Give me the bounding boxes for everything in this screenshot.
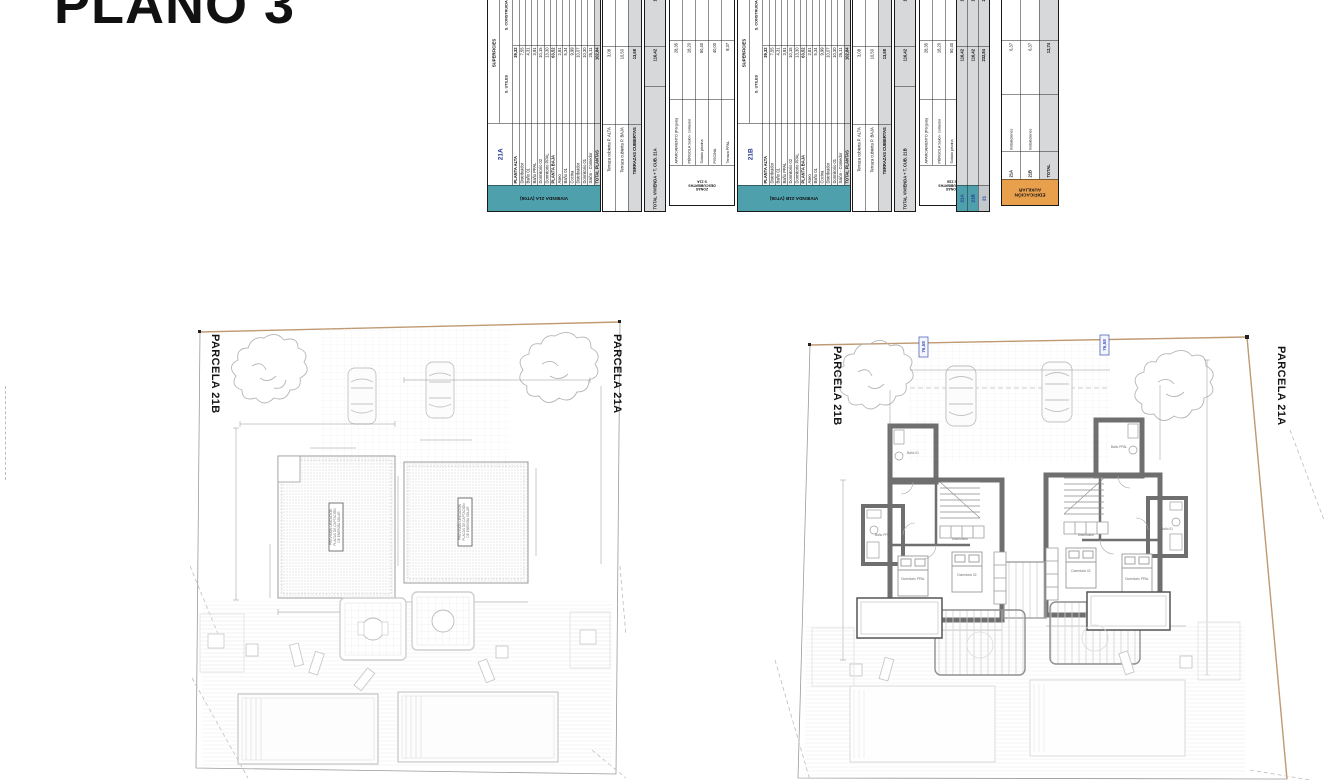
cell-construidas: 12 bbox=[844, 0, 850, 45]
row-id: 21B bbox=[1021, 151, 1039, 179]
cell-utiles: 13,58 bbox=[629, 47, 641, 124]
svg-text:Baño 01: Baño 01 bbox=[1161, 527, 1173, 531]
table-row: APARCAMIENTO (Pérgola)28,35 bbox=[670, 0, 682, 165]
row-id: 21A bbox=[1002, 151, 1020, 179]
sheet-title: PLANO 3 bbox=[54, 0, 295, 36]
table-rows: TOTAL VIVIENDA + T. CUB. 21A116,4213 bbox=[645, 0, 665, 211]
cell-utiles: 3,08 bbox=[853, 47, 865, 124]
auxiliar-side-line: EDIFICACIÓN bbox=[1015, 192, 1046, 197]
table-id-cell: 21A bbox=[488, 123, 513, 185]
car-icon bbox=[946, 366, 976, 426]
table-row: TERRAZAS CUBIERTAS13,581 bbox=[628, 0, 641, 211]
car-icon bbox=[1042, 362, 1072, 422]
cell-value: 116,42 bbox=[957, 47, 967, 186]
cell-construidas: 1 bbox=[1040, 0, 1058, 40]
svg-text:Baño 01: Baño 01 bbox=[907, 451, 919, 455]
cell-construidas bbox=[853, 0, 865, 47]
table-row: TOTAL PLANTAS102,8412 bbox=[594, 0, 600, 185]
construidas-header: S. CONSTRUIDAS bbox=[500, 0, 513, 45]
floor-plan-drawing: 76,58 76,58 bbox=[770, 330, 1324, 780]
table-vivienda-21b: VIVIENDA 21B (VT06)21BSUPERFICIESS. UTIL… bbox=[737, 0, 851, 212]
cell-value: 18,20 bbox=[683, 40, 695, 98]
superficies-header: SUPERFICIES bbox=[738, 0, 750, 123]
cell-construidas: 13 bbox=[895, 0, 915, 47]
table-row: Solado piscina50,40 bbox=[695, 0, 708, 165]
resumen-id: 21A bbox=[957, 185, 967, 211]
auxiliar-side-line: AUXILIAR bbox=[1015, 187, 1046, 192]
roof-plan-drawing: PREVISIÓN UBICACIÓN PLACAS DE CAPTACIÓN … bbox=[190, 316, 626, 780]
cell-value: 18,20 bbox=[933, 40, 945, 98]
resumen-id: 21 bbox=[979, 185, 989, 211]
superficies-header: SUPERFICIES bbox=[488, 0, 500, 123]
table-rows: TOTAL VIVIENDA + T. CUB. 21B116,4213 bbox=[895, 0, 915, 211]
utiles-header: S. UTILES bbox=[750, 45, 763, 123]
table-rows: PLANTA ALTA39,324Distribuidor7,55Baño 01… bbox=[763, 0, 850, 185]
svg-text:Baño PPAL: Baño PPAL bbox=[1111, 445, 1127, 449]
svg-text:Baño PPAL: Baño PPAL bbox=[875, 533, 891, 537]
car-icon bbox=[426, 362, 454, 418]
parcela-label-21a: PARCELA 21A bbox=[611, 334, 623, 414]
roof-area-21a: PREVISIÓN UBICACIÓN PLACAS DE CAPTACIÓN … bbox=[404, 462, 528, 583]
cell-utiles: 116,42 bbox=[895, 47, 915, 87]
table-row: PÉRGOLA Salón- comedor18,20 bbox=[932, 0, 945, 165]
table-total-21a: TOTAL VIVIENDA + T. CUB. 21A116,4213 bbox=[644, 0, 666, 212]
cell-construidas bbox=[696, 0, 708, 40]
vivienda-side-label: VIVIENDA 21B (VT06) bbox=[770, 196, 818, 201]
table-zonas-descubiertas-21a: ZONASDESCUBIERTASS 21AAPARCAMIENTO (Pérg… bbox=[669, 0, 735, 206]
solar-note-text: PREVISIÓN UBICACIÓN PLACAS DE CAPTACIÓN … bbox=[457, 503, 470, 541]
table-row: Terraza PPAL9,37 bbox=[721, 0, 734, 165]
svg-text:76,58: 76,58 bbox=[1102, 339, 1107, 351]
row-name: Instalaciones bbox=[1021, 94, 1039, 151]
side-deck bbox=[812, 628, 854, 686]
cell-value: 232,84 bbox=[979, 47, 989, 186]
table-terrazas-21a: Terraza cubierta P. ALTA3,08Terraza cubi… bbox=[602, 0, 642, 212]
row-label: Terraza cubierta P. ALTA bbox=[853, 124, 865, 211]
row-label: TERRAZAS CUBIERTAS bbox=[879, 124, 891, 211]
cell-value: 50,40 bbox=[696, 40, 708, 98]
table-row: Terraza cubierta P. BAJA10,50 bbox=[865, 0, 878, 211]
table-terrazas-21b: Terraza cubierta P. ALTA3,08Terraza cubi… bbox=[852, 0, 892, 212]
table-row: TOTAL PLANTAS102,8412 bbox=[844, 0, 850, 185]
cell-construidas bbox=[683, 0, 695, 40]
table-rows: APARCAMIENTO (Pérgola)28,35PÉRGOLA Salón… bbox=[670, 0, 734, 165]
table-row: 21232,8427 bbox=[978, 0, 989, 211]
parcela-label-21b: PARCELA 21B bbox=[209, 334, 221, 414]
row-label: TOTAL VIVIENDA + T. CUB. 21A bbox=[645, 86, 665, 211]
row-label: PÉRGOLA Salón- comedor bbox=[683, 99, 695, 165]
cell-construidas bbox=[866, 0, 878, 47]
row-label: TOTAL PLANTAS bbox=[594, 123, 600, 185]
table-row: 21B116,4213 bbox=[967, 0, 978, 211]
cell-construidas bbox=[722, 0, 734, 40]
cell-utiles: 102,84 bbox=[594, 45, 600, 123]
cell-value: 6,37 bbox=[1002, 40, 1020, 93]
row-label: Terraza cubierta P. ALTA bbox=[603, 124, 615, 211]
cell-value: 12,74 bbox=[1040, 40, 1058, 93]
driveway-hatch bbox=[910, 344, 1110, 462]
table-row: TERRAZAS CUBIERTAS13,581 bbox=[878, 0, 891, 211]
row-label: APARCAMIENTO (Pérgola) bbox=[670, 99, 682, 165]
vivienda-side-band: VIVIENDA 21B (VT06) bbox=[738, 185, 850, 211]
table-row: Terraza cubierta P. ALTA3,08 bbox=[603, 0, 615, 211]
cell-construidas: 13 bbox=[957, 0, 967, 47]
vivienda-side-label: VIVIENDA 21A (VT06) bbox=[520, 196, 568, 201]
pool bbox=[398, 692, 558, 762]
cell-utiles: 13,58 bbox=[879, 47, 891, 124]
row-label: TOTAL PLANTAS bbox=[844, 123, 850, 185]
cell-construidas bbox=[616, 0, 628, 47]
table-row: 21BInstalaciones6,37 bbox=[1020, 0, 1039, 179]
cell-value: 40,00 bbox=[709, 40, 721, 98]
cell-utiles: 102,84 bbox=[844, 45, 850, 123]
cell-construidas bbox=[933, 0, 945, 40]
row-label: Terraza cubierta P. BAJA bbox=[866, 124, 878, 211]
table-rows: PLANTA ALTA39,324Distribuidor7,55Baño 01… bbox=[513, 0, 600, 185]
utiles-header: S. UTILES bbox=[500, 45, 513, 123]
row-label: PÉRGOLA Salón- comedor bbox=[933, 99, 945, 165]
svg-text:Dormitorio 02: Dormitorio 02 bbox=[1071, 569, 1090, 573]
cell-construidas bbox=[603, 0, 615, 47]
row-name: Instalaciones bbox=[1002, 94, 1020, 151]
auxiliar-side-label: EDIFICACIÓNAUXILIAR bbox=[1015, 187, 1046, 197]
pool bbox=[238, 694, 378, 764]
svg-text:DE ENERGÍA SOLAR: DE ENERGÍA SOLAR bbox=[466, 506, 470, 538]
table-row: PÉRGOLA Salón- comedor18,20 bbox=[682, 0, 695, 165]
zonas-side-band: ZONASDESCUBIERTASS 21A bbox=[670, 165, 734, 205]
neighbour-boundary-dash bbox=[5, 386, 6, 480]
svg-text:Dormitorio PPAL: Dormitorio PPAL bbox=[901, 577, 925, 581]
cell-value: 28,35 bbox=[920, 40, 932, 98]
plan-sheet: PLANO 3 VIVIENDA 21A (VT06)21ASUPERFICIE… bbox=[0, 0, 1324, 780]
svg-text:DE ENERGÍA SOLAR: DE ENERGÍA SOLAR bbox=[337, 511, 341, 543]
cell-construidas: 12 bbox=[594, 0, 600, 45]
zonas-side-label: ZONASDESCUBIERTASS 21A bbox=[688, 180, 715, 191]
svg-text:Dormitorio PPAL: Dormitorio PPAL bbox=[1125, 577, 1149, 581]
cell-construidas bbox=[920, 0, 932, 40]
row-label: Terraza PPAL bbox=[722, 99, 734, 165]
cell-value: 28,35 bbox=[670, 40, 682, 98]
table-row: Terraza cubierta P. BAJA10,50 bbox=[615, 0, 628, 211]
table-row: TOTAL VIVIENDA + T. CUB. 21B116,4213 bbox=[895, 0, 915, 211]
cell-value: 116,42 bbox=[968, 47, 978, 186]
table-resumen-superficies: 21A116,421321B116,421321232,8427 bbox=[956, 0, 990, 212]
table-rows: 21A116,421321B116,421321232,8427 bbox=[957, 0, 989, 211]
auxiliar-side-band: EDIFICACIÓNAUXILIAR bbox=[1002, 179, 1058, 205]
table-vivienda-21a: VIVIENDA 21A (VT06)21ASUPERFICIESS. UTIL… bbox=[487, 0, 601, 212]
table-edificacion-auxiliar: EDIFICACIÓNAUXILIAR21AInstalaciones6,372… bbox=[1001, 0, 1059, 206]
cell-value: 6,37 bbox=[1021, 40, 1039, 93]
cell-construidas: 13 bbox=[645, 0, 665, 47]
table-rows: Terraza cubierta P. ALTA3,08Terraza cubi… bbox=[603, 0, 641, 211]
cell-construidas: 1 bbox=[879, 0, 891, 47]
table-row: APARCAMIENTO (Pérgola)28,35 bbox=[920, 0, 932, 165]
row-name bbox=[1040, 94, 1058, 151]
level-marker: 76,58 bbox=[919, 337, 928, 357]
zonas-side-line: DESCUBIERTAS bbox=[688, 183, 715, 187]
table-rows: Terraza cubierta P. ALTA3,08Terraza cubi… bbox=[853, 0, 891, 211]
cell-utiles: 10,50 bbox=[616, 47, 628, 124]
side-deck bbox=[1198, 622, 1240, 680]
solar-note-text: PREVISIÓN UBICACIÓN PLACAS DE CAPTACIÓN … bbox=[328, 508, 341, 546]
cell-construidas bbox=[1002, 0, 1020, 40]
cell-construidas: 1 bbox=[629, 0, 641, 47]
table-row: PISCINA40,00 bbox=[708, 0, 721, 165]
svg-text:Dormitorio 02: Dormitorio 02 bbox=[957, 573, 976, 577]
row-label: PISCINA bbox=[709, 99, 721, 165]
row-id: TOTAL bbox=[1040, 151, 1058, 179]
level-marker: 76,58 bbox=[1100, 335, 1109, 355]
row-label: TOTAL VIVIENDA + T. CUB. 21B bbox=[895, 86, 915, 211]
cell-utiles: 10,50 bbox=[866, 47, 878, 124]
table-row: TOTAL12,741 bbox=[1039, 0, 1058, 179]
table-rows: 21AInstalaciones6,3721BInstalaciones6,37… bbox=[1002, 0, 1058, 179]
svg-text:Distribuidor: Distribuidor bbox=[952, 537, 969, 541]
cell-construidas bbox=[670, 0, 682, 40]
table-row: 21AInstalaciones6,37 bbox=[1002, 0, 1020, 179]
parcela-label-21b: PARCELA 21B bbox=[831, 346, 843, 426]
vivienda-side-band: VIVIENDA 21A (VT06) bbox=[488, 185, 600, 211]
construidas-header: S. CONSTRUIDAS bbox=[750, 0, 763, 45]
cell-construidas: 27 bbox=[979, 0, 989, 47]
zonas-side-line: ZONAS bbox=[688, 187, 715, 191]
cell-utiles: 116,42 bbox=[645, 47, 665, 87]
parcela-label-21a: PARCELA 21A bbox=[1275, 346, 1287, 426]
svg-text:Distribuidor: Distribuidor bbox=[1078, 533, 1095, 537]
row-label: Solado piscina bbox=[696, 99, 708, 165]
svg-text:76,58: 76,58 bbox=[921, 341, 926, 353]
table-row: TOTAL VIVIENDA + T. CUB. 21A116,4213 bbox=[645, 0, 665, 211]
row-label: TERRAZAS CUBIERTAS bbox=[629, 124, 641, 211]
cell-construidas bbox=[1021, 0, 1039, 40]
cell-construidas: 13 bbox=[968, 0, 978, 47]
car-icon bbox=[348, 368, 376, 424]
table-row: Terraza cubierta P. ALTA3,08 bbox=[853, 0, 865, 211]
table-total-21b: TOTAL VIVIENDA + T. CUB. 21B116,4213 bbox=[894, 0, 916, 212]
table-id-cell: 21B bbox=[738, 123, 763, 185]
row-label: APARCAMIENTO (Pérgola) bbox=[920, 99, 932, 165]
cell-utiles: 3,08 bbox=[603, 47, 615, 124]
table-row: 21A116,4213 bbox=[957, 0, 967, 211]
cell-construidas bbox=[709, 0, 721, 40]
roof-area-21b: PREVISIÓN UBICACIÓN PLACAS DE CAPTACIÓN … bbox=[278, 456, 395, 598]
resumen-id: 21B bbox=[968, 185, 978, 211]
cell-value: 9,37 bbox=[722, 40, 734, 98]
row-label: Terraza cubierta P. BAJA bbox=[616, 124, 628, 211]
